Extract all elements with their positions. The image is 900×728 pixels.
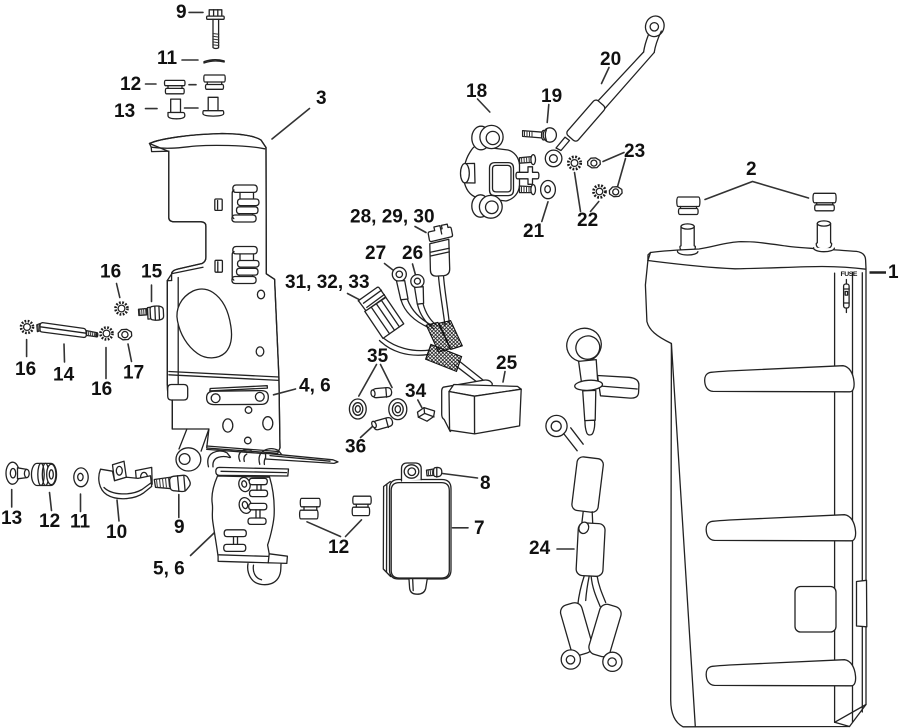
svg-text:15: 15 <box>141 262 163 283</box>
svg-text:10: 10 <box>106 522 127 543</box>
svg-text:9: 9 <box>176 2 187 23</box>
svg-text:5, 6: 5, 6 <box>153 559 185 580</box>
svg-text:14: 14 <box>53 365 75 386</box>
svg-text:25: 25 <box>496 353 518 374</box>
svg-text:36: 36 <box>345 437 366 458</box>
svg-text:18: 18 <box>466 81 487 102</box>
svg-text:12: 12 <box>328 537 349 558</box>
svg-text:11: 11 <box>157 48 178 69</box>
svg-text:19: 19 <box>541 86 562 107</box>
svg-text:11: 11 <box>70 512 91 533</box>
svg-text:34: 34 <box>405 381 427 402</box>
svg-text:17: 17 <box>123 363 144 384</box>
svg-text:23: 23 <box>624 141 645 162</box>
svg-text:16: 16 <box>100 262 121 283</box>
svg-text:26: 26 <box>402 243 423 264</box>
svg-text:2: 2 <box>746 159 757 180</box>
svg-text:9: 9 <box>174 517 185 538</box>
svg-text:12: 12 <box>120 74 141 95</box>
svg-text:13: 13 <box>114 101 135 122</box>
svg-text:13: 13 <box>1 508 22 529</box>
svg-text:21: 21 <box>523 221 545 242</box>
svg-text:8: 8 <box>480 473 491 494</box>
svg-text:31, 32, 33: 31, 32, 33 <box>285 272 370 293</box>
svg-text:16: 16 <box>15 359 36 380</box>
svg-text:4, 6: 4, 6 <box>299 376 331 397</box>
svg-text:16: 16 <box>91 379 112 400</box>
svg-text:FUSE: FUSE <box>841 271 858 278</box>
svg-text:1: 1 <box>888 262 899 283</box>
svg-text:3: 3 <box>316 88 327 109</box>
svg-text:24: 24 <box>529 538 551 559</box>
svg-text:7: 7 <box>474 518 485 539</box>
svg-text:22: 22 <box>577 210 598 231</box>
svg-text:20: 20 <box>600 49 621 70</box>
svg-text:12: 12 <box>39 511 60 532</box>
svg-text:28, 29, 30: 28, 29, 30 <box>350 207 435 228</box>
svg-text:35: 35 <box>367 346 389 367</box>
svg-text:27: 27 <box>365 243 386 264</box>
